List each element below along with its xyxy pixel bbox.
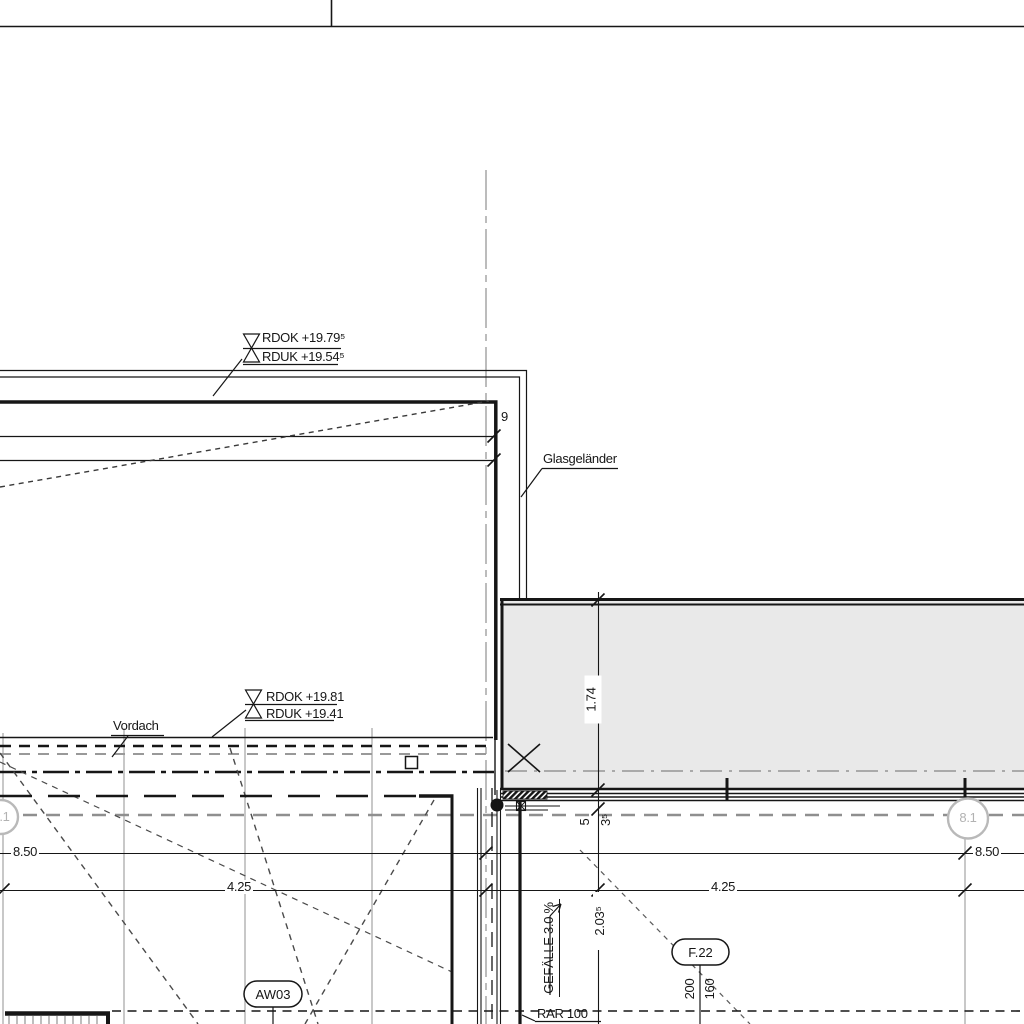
level-marker-upper-rduk <box>244 348 260 362</box>
sheet-border <box>0 0 1024 27</box>
dim-2035: 2.03⁵ <box>593 892 609 950</box>
level-marker-lower-rduk <box>246 704 262 718</box>
wall-tag-label: AW03 <box>244 982 302 1007</box>
roof-edge-thick-line <box>0 402 496 740</box>
architectural-roof-plan: RDOK +19.79⁵ RDUK +19.54⁵ RDOK +19.81 RD… <box>0 0 1024 1024</box>
dim-425-left: 4.25 <box>225 880 253 894</box>
dim-160: 160 <box>703 969 719 1009</box>
level-marker-lower-rdok <box>246 690 262 704</box>
level-lower-rdok-label: RDOK +19.81 <box>266 690 344 704</box>
dim-9: 9 <box>501 410 508 424</box>
level-upper-rdok-label: RDOK +19.79⁵ <box>262 331 345 345</box>
glass-railing-line <box>0 377 520 600</box>
roof-parapet-outer-line <box>0 371 527 601</box>
balcony-slab <box>503 601 1024 789</box>
roof-drain-square <box>406 757 418 769</box>
dim-425-right: 4.25 <box>709 880 737 894</box>
dim-35: 3⁵ <box>599 810 615 830</box>
level-lower-rduk-label: RDUK +19.41 <box>266 707 343 721</box>
glass-railing-leader <box>521 469 542 498</box>
walls-lower <box>0 788 1024 1024</box>
window-tag-label: F.22 <box>672 940 729 965</box>
dim-200: 200 <box>683 969 699 1009</box>
roof-upper <box>0 371 527 796</box>
drawing-linework <box>0 0 1024 1024</box>
slope-label: GEFÄLLE 3.0 % <box>542 899 560 997</box>
dim-174: 1.74 <box>585 676 602 724</box>
wall-section-hatch <box>503 791 547 799</box>
level-marker-upper-rdok <box>244 334 260 348</box>
drain-label: RAR 100 <box>537 1007 588 1021</box>
dim-850-right: 8.50 <box>973 845 1001 859</box>
wall-hatch-ticks <box>9 1016 97 1024</box>
glass-railing-label: Glasgeländer <box>543 452 617 466</box>
roof-slope-dotted-line <box>0 401 489 487</box>
dim-5: 5 <box>578 814 594 830</box>
grid-bubble-right-label: 8.1 <box>955 811 981 825</box>
grid-lines <box>0 170 1024 1024</box>
level-upper-rduk-label: RDUK +19.54⁵ <box>262 350 344 364</box>
drain-leader <box>522 1015 535 1021</box>
tags-and-bubbles <box>0 799 988 1008</box>
dim-850-left: 8.50 <box>11 845 39 859</box>
canopy-label: Vordach <box>113 719 159 733</box>
grid-bubble-left-label: 8.1 <box>0 810 14 824</box>
level-lower-leader <box>212 710 246 737</box>
